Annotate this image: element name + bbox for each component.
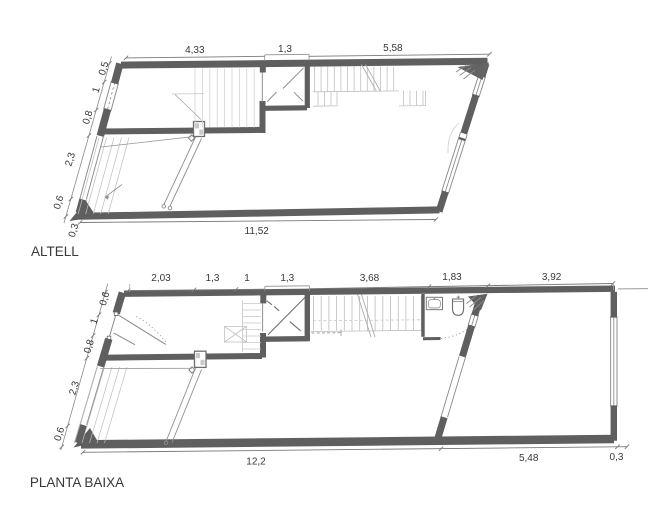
svg-text:3,92: 3,92 — [542, 272, 562, 283]
svg-text:0,3: 0,3 — [610, 452, 624, 463]
svg-text:4,33: 4,33 — [185, 45, 205, 56]
svg-text:1,3: 1,3 — [206, 273, 220, 284]
svg-text:5,48: 5,48 — [519, 453, 539, 464]
svg-text:11,52: 11,52 — [245, 226, 270, 237]
svg-text:1,3: 1,3 — [278, 44, 292, 55]
svg-text:5,58: 5,58 — [383, 43, 403, 54]
svg-text:12,2: 12,2 — [246, 456, 266, 467]
svg-text:ALTELL: ALTELL — [31, 244, 79, 259]
svg-text:PLANTA BAIXA: PLANTA BAIXA — [30, 475, 124, 490]
svg-text:1: 1 — [244, 273, 250, 284]
svg-text:1,3: 1,3 — [280, 273, 294, 284]
svg-text:2,03: 2,03 — [151, 273, 171, 284]
svg-text:3,68: 3,68 — [360, 273, 380, 284]
svg-text:1,83: 1,83 — [442, 272, 462, 283]
